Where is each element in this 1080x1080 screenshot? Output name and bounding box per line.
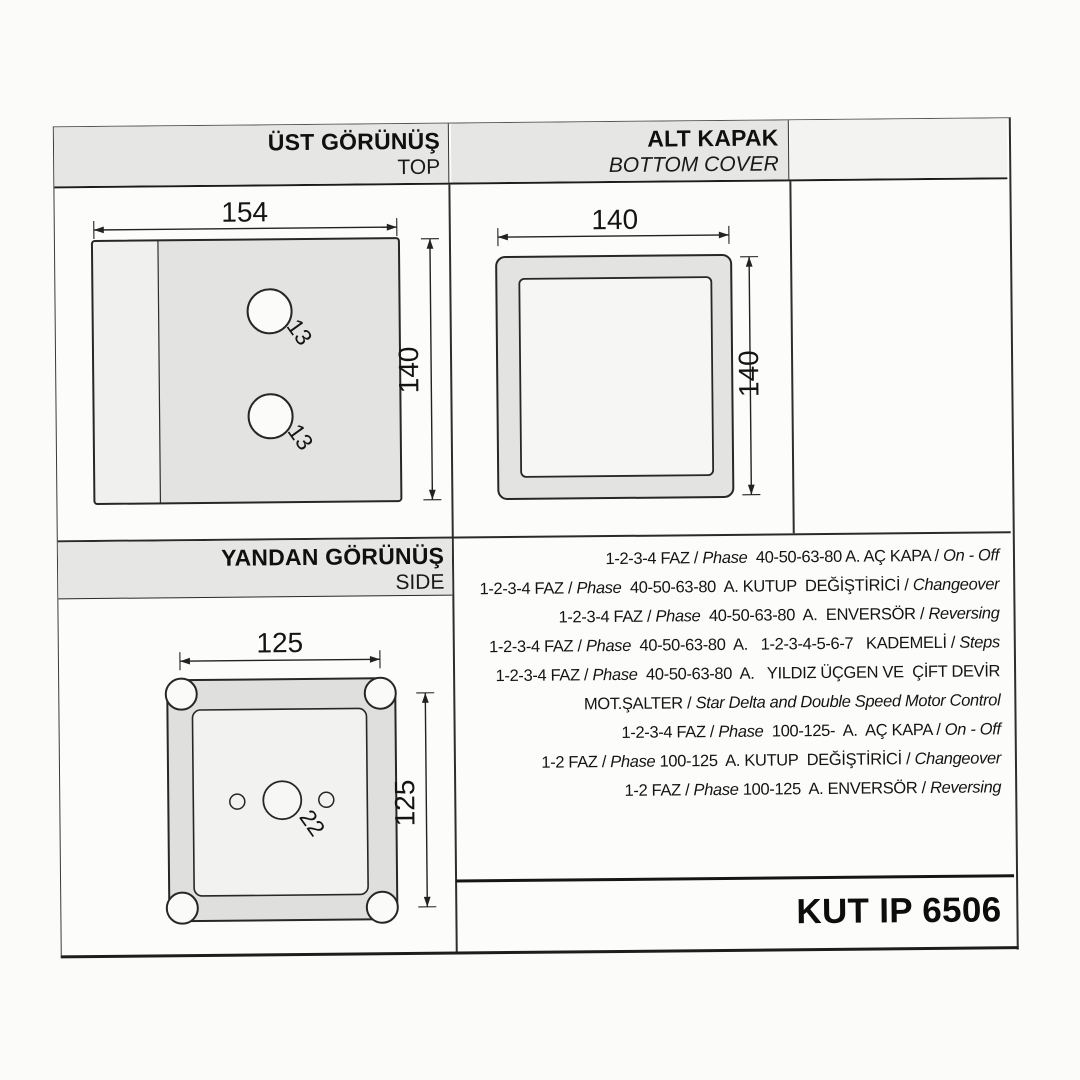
header-bottom-cover: ALT KAPAK BOTTOM COVER — [450, 120, 789, 182]
bottom-cover-title-tr: ALT KAPAK — [450, 123, 778, 154]
model-number-band: KUT IP 6506 — [457, 877, 1015, 951]
bottom-cover-width-label: 140 — [591, 204, 638, 235]
top-view-width-dimension: 154 — [93, 195, 396, 239]
side-view-small-hole-right — [319, 792, 334, 807]
top-view-title-tr: ÜST GÖRÜNÜŞ — [54, 127, 440, 159]
bottom-cover-height-label: 140 — [733, 350, 764, 397]
corner-screw-top-right — [365, 678, 396, 709]
side-view-small-hole-left — [230, 794, 245, 809]
bottom-cover-drawing: 140 140 — [450, 179, 1010, 536]
header-empty-cell — [790, 118, 1007, 179]
side-view-width-dimension: 125 — [180, 626, 380, 670]
header-band: ÜST GÖRÜNÜŞ TOP ALT KAPAK BOTTOM COVER — [54, 118, 1008, 188]
scanned-datasheet-page: ÜST GÖRÜNÜŞ TOP ALT KAPAK BOTTOM COVER Y… — [0, 0, 1080, 1080]
header-side-view: YANDAN GÖRÜNÜŞ SIDE — [58, 538, 453, 599]
top-view-drawing: 154 140 13 13 — [54, 185, 451, 541]
corner-screw-bottom-right — [367, 892, 398, 923]
top-view-height-label: 140 — [393, 346, 424, 393]
top-view-width-label: 154 — [221, 196, 268, 227]
bottom-cover-height-dimension: 140 — [732, 257, 765, 495]
bottom-cover-title-en: BOTTOM COVER — [451, 151, 779, 179]
top-view-title-en: TOP — [54, 155, 440, 184]
side-view-height-label: 125 — [389, 780, 420, 827]
model-number: KUT IP 6506 — [796, 890, 1001, 931]
side-view-drawing: 22 125 125 — [58, 597, 455, 954]
side-view-width-label: 125 — [256, 627, 303, 658]
corner-screw-bottom-left — [167, 893, 198, 924]
corner-screw-top-left — [166, 679, 197, 710]
side-view-center-hole — [263, 781, 301, 819]
top-view-left-flange — [92, 240, 161, 504]
side-view-title-en: SIDE — [58, 569, 444, 598]
bottom-cover-inner — [519, 277, 713, 477]
side-view-title-tr: YANDAN GÖRÜNÜŞ — [58, 541, 444, 573]
bottom-cover-width-dimension: 140 — [498, 203, 729, 246]
drawing-sheet: ÜST GÖRÜNÜŞ TOP ALT KAPAK BOTTOM COVER Y… — [53, 117, 1019, 958]
spec-list: 1-2-3-4 FAZ / Phase 40-50-63-80 A. AÇ KA… — [454, 531, 1014, 879]
spec-line: 1-2 FAZ / Phase 100-125 A. ENVERSÖR / Re… — [456, 773, 1001, 807]
header-top-view: ÜST GÖRÜNÜŞ TOP — [54, 124, 450, 187]
top-view-body — [158, 238, 402, 503]
